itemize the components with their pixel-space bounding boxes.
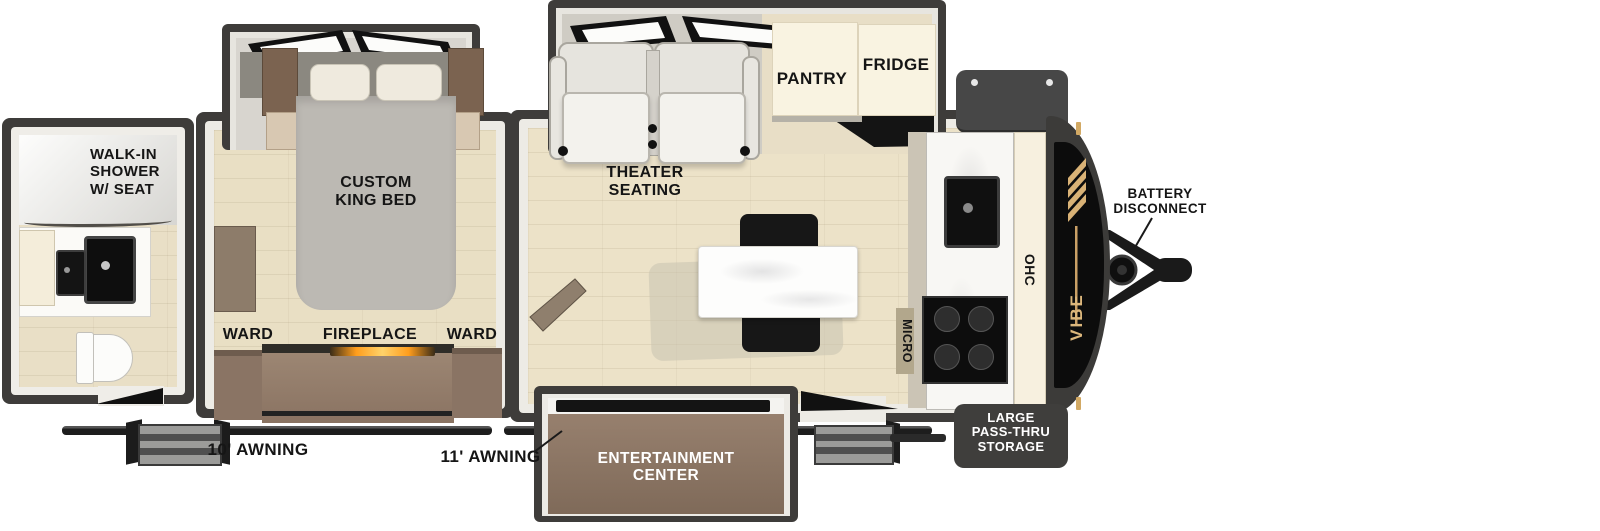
nightstand-left bbox=[266, 112, 298, 150]
pantry-label: PANTRY bbox=[762, 70, 862, 89]
brand-label: VIBE bbox=[1068, 272, 1088, 362]
burner bbox=[934, 306, 960, 332]
ohc-label: OHC bbox=[1021, 239, 1037, 301]
theater-cushion-right bbox=[658, 92, 746, 164]
cupholder bbox=[740, 146, 750, 156]
pillow-right bbox=[376, 64, 442, 101]
vanity-sink bbox=[84, 236, 136, 304]
kitchen-sink bbox=[944, 176, 1000, 248]
cap-trim-bottom bbox=[1076, 397, 1081, 410]
ward-left-label: WARD bbox=[208, 326, 288, 344]
ward-cabinet-right bbox=[452, 348, 502, 418]
bath-entry-door-swing bbox=[96, 388, 163, 404]
sink-faucet bbox=[963, 203, 973, 213]
main-entry-door-swing bbox=[801, 391, 898, 411]
faucet bbox=[101, 261, 110, 270]
bed-label: CUSTOM KING BED bbox=[298, 174, 454, 209]
shower-label: WALK-IN SHOWER W/ SEAT bbox=[90, 146, 186, 198]
dresser-track bbox=[262, 411, 454, 416]
burner bbox=[934, 344, 960, 370]
linen-cabinet bbox=[19, 230, 55, 306]
fireplace-label: FIREPLACE bbox=[310, 326, 430, 344]
micro-label: MICRO bbox=[897, 310, 913, 372]
bedroom-wardrobe-desk bbox=[214, 226, 256, 312]
entertainment-label: ENTERTAINMENT CENTER bbox=[566, 450, 766, 484]
battery-label: BATTERY DISCONNECT bbox=[1110, 187, 1210, 217]
floor-plan: ENTERTAINMENT CENTER WALK-IN SHOWER W/ S… bbox=[0, 0, 1600, 531]
toilet-tank bbox=[76, 332, 94, 384]
pass-thru-label: LARGE PASS-THRU STORAGE bbox=[954, 411, 1068, 454]
ward-cabinet-left bbox=[214, 350, 264, 420]
angled-counter bbox=[530, 279, 586, 331]
fridge-label: FRIDGE bbox=[848, 56, 944, 75]
awning-rear-label: 10' AWNING bbox=[168, 441, 348, 460]
chair-bottom bbox=[742, 312, 820, 352]
theater-cushion-left bbox=[562, 92, 650, 164]
ward-right-label: WARD bbox=[432, 326, 512, 344]
fireplace-glow bbox=[330, 347, 435, 356]
awning-main-label: 11' AWNING bbox=[408, 448, 573, 467]
pillow-left bbox=[310, 64, 370, 101]
theater-label: THEATER SEATING bbox=[575, 164, 715, 199]
bedside-column-left bbox=[262, 48, 298, 116]
burner bbox=[968, 306, 994, 332]
cupholder bbox=[648, 140, 657, 149]
cap-trim-top bbox=[1076, 122, 1081, 135]
cupholder bbox=[558, 146, 568, 156]
second-faucet bbox=[64, 267, 70, 273]
second-sink bbox=[56, 250, 86, 296]
island-table bbox=[698, 246, 858, 318]
cupholder bbox=[648, 124, 657, 133]
cooktop bbox=[922, 296, 1008, 384]
burner bbox=[968, 344, 994, 370]
